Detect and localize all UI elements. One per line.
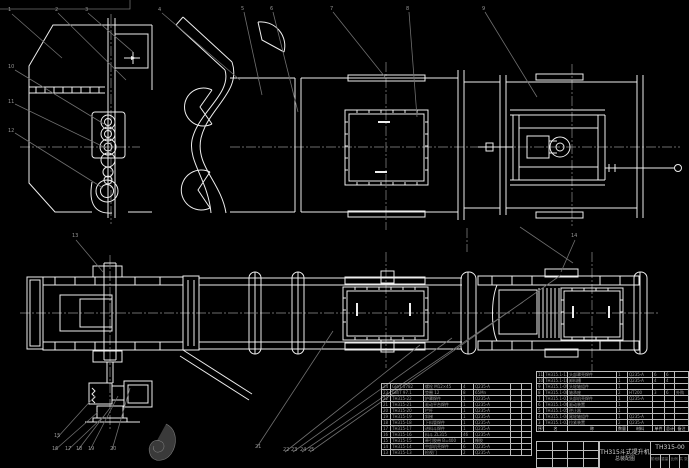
callout-label: 9 — [482, 7, 485, 12]
boot-section-front — [478, 110, 682, 185]
cad-drawing-page: 1 2 3 4 5 6 7 8 9 10 11 12 13 14 15 16 1… — [0, 0, 689, 468]
bom-header-cell: 总计 — [665, 426, 675, 432]
casing-plan-walls — [199, 278, 462, 349]
bom-header-cell: 单件 — [653, 426, 665, 432]
callout-label: 18 — [76, 447, 82, 452]
drive-unit-plan — [85, 362, 152, 422]
drawing-number-cell: TH315-00 阶段标记 重量 比例 共 张 第 张 — [651, 442, 689, 468]
bom-cell: 2 — [462, 450, 474, 456]
title-cell: TH315斗式提升机 总装配图 — [600, 442, 651, 468]
callout-label: 4 — [158, 8, 161, 13]
callout-label: 13 — [72, 234, 78, 239]
watermark-logo — [149, 424, 175, 460]
sheet-title: 总装配图 — [615, 456, 635, 462]
signature-grid — [537, 442, 600, 468]
elevator-buckets — [181, 22, 285, 210]
callout-label: 11 — [8, 100, 14, 105]
bom-header-cell: 称 — [568, 426, 617, 432]
bom-cell: 检视门 — [424, 450, 462, 456]
service-platform — [29, 87, 105, 93]
flange-strips — [348, 74, 583, 218]
callout-label: 19 — [88, 447, 94, 452]
bom-row: 13TH315-13检视门2Q235-A — [382, 450, 532, 456]
bom-table-left: 24GB/T 5782螺栓 M12×454Q235-A23GB/T 97.1垫圈… — [381, 383, 532, 456]
callout-label: 1 — [8, 8, 11, 13]
centerlines-front — [20, 14, 680, 230]
callout-label: 25 — [308, 448, 314, 453]
callout-label: 21 — [255, 445, 261, 450]
bom-table-right: 11TH315.1-11头部罩壳焊件1Q235-A6610TH315.1-10卸… — [536, 371, 689, 432]
inspection-door-plan — [343, 271, 428, 352]
discharge-spout — [176, 17, 232, 70]
chute-outer-wall — [200, 62, 234, 213]
callout-label: 10 — [8, 65, 14, 70]
bom-cell: Q235-A — [474, 450, 511, 456]
callout-label: 6 — [270, 7, 273, 12]
bom-cell — [511, 450, 522, 456]
callout-label: 3 — [85, 8, 88, 13]
casing-joints — [295, 70, 643, 220]
bom-header-row: 序号 名 称 数量 材料 单件 总计 备注 — [537, 426, 689, 432]
callout-label: 2 — [55, 8, 58, 13]
viewport-border-fragment — [0, 0, 130, 9]
callout-label: 15 — [54, 434, 60, 439]
callout-label: 7 — [330, 7, 333, 12]
callout-label: 17 — [65, 447, 71, 452]
bom-cell — [522, 450, 532, 456]
callout-label: 20 — [110, 447, 116, 452]
footer-cell: 重量 — [661, 455, 671, 468]
chute-inner-wall — [191, 70, 225, 213]
casing-walls — [230, 78, 637, 212]
callout-label: 14 — [571, 234, 577, 239]
head-casing-outline — [29, 25, 152, 212]
bom-header-cell: 材料 — [628, 426, 653, 432]
callout-label: 24 — [300, 448, 306, 453]
callout-label: 12 — [8, 129, 14, 134]
front-view — [20, 14, 682, 230]
bom-cell: 13 — [382, 450, 391, 456]
bom-header-cell: 序号 — [537, 426, 544, 432]
bom-cell: TH315-13 — [391, 450, 424, 456]
footer-cell: 共 张 第 张 — [680, 455, 689, 468]
drawing-number: TH315-00 — [651, 442, 689, 455]
title-footer-row: 阶段标记 重量 比例 共 张 第 张 — [651, 455, 689, 468]
callout-label: 5 — [241, 7, 244, 12]
product-title: TH315斗式提升机 — [600, 449, 650, 456]
callout-label: 8 — [406, 7, 409, 12]
callout-label: 16 — [52, 447, 58, 452]
title-block: TH315斗式提升机 总装配图 TH315-00 阶段标记 重量 比例 共 张 … — [536, 441, 689, 468]
callout-label: 22 — [283, 448, 289, 453]
bom-header-cell: 名 — [544, 426, 568, 432]
footer-cell: 比例 — [670, 455, 680, 468]
bom-header-cell: 备注 — [675, 426, 689, 432]
inspection-door-front — [345, 110, 428, 185]
footer-cell: 阶段标记 — [651, 455, 661, 468]
bom-header-cell: 数量 — [617, 426, 628, 432]
callout-label: 23 — [291, 448, 297, 453]
head-plan — [27, 263, 252, 400]
